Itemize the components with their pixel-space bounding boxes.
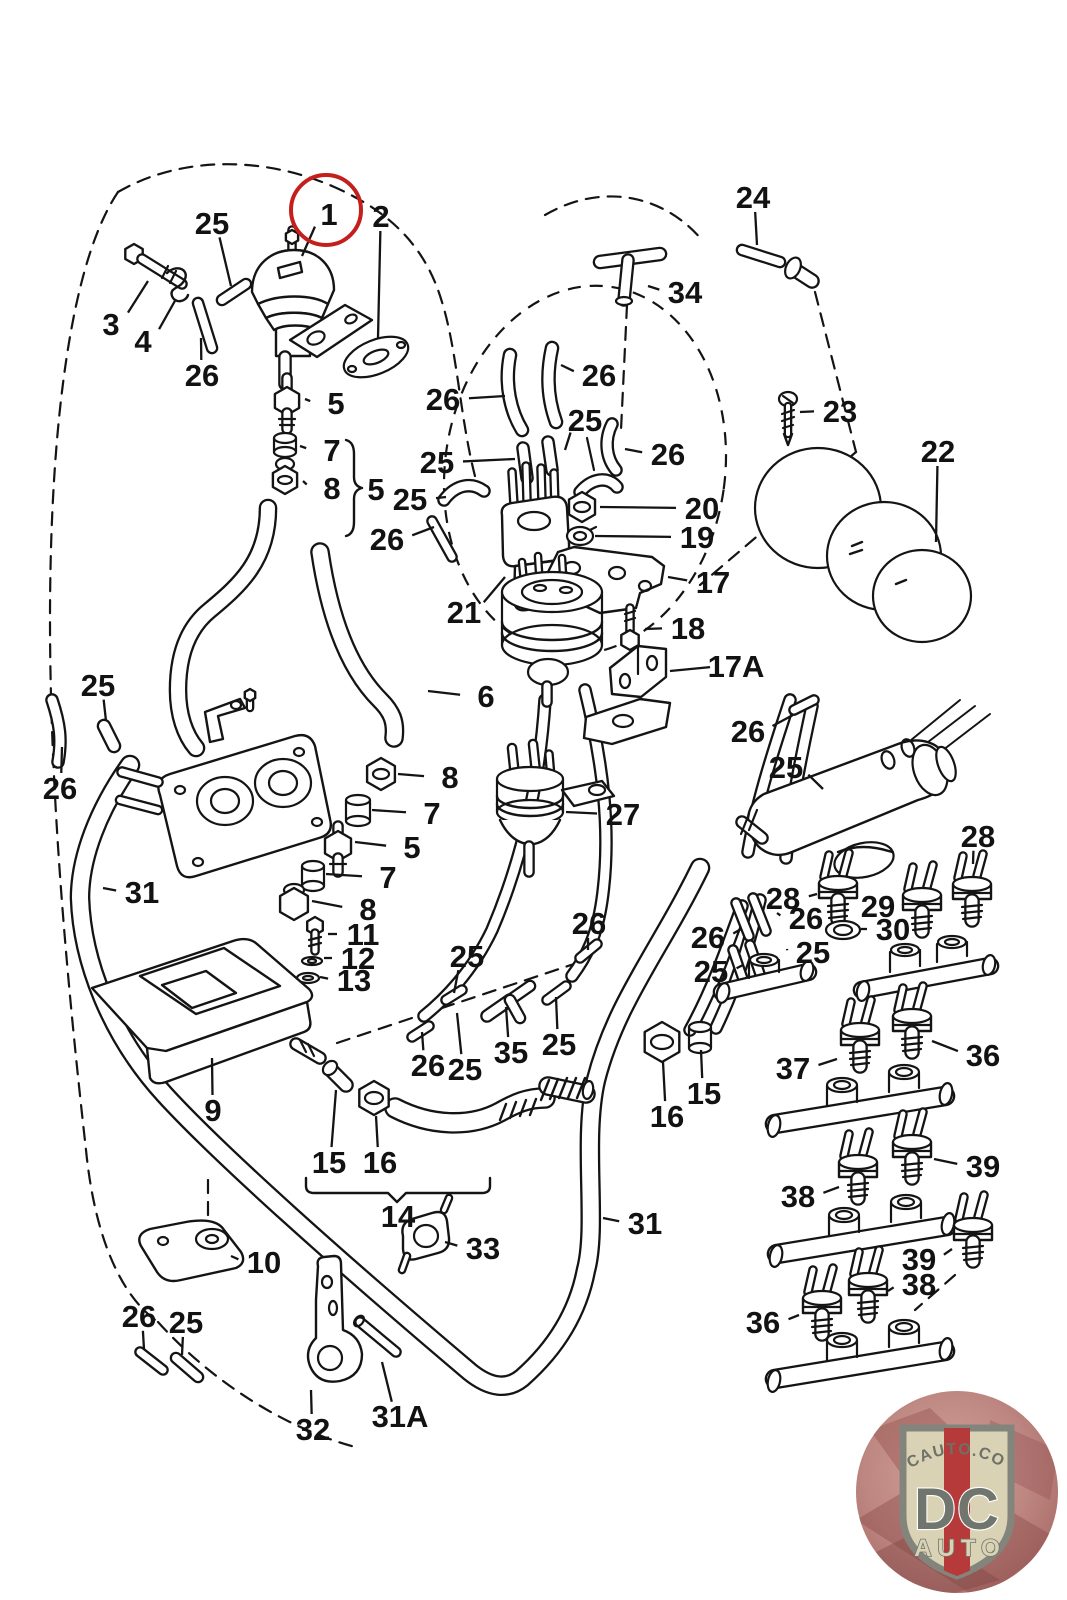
- leader-line: [436, 497, 446, 498]
- part-label-36: 36: [966, 1038, 1000, 1073]
- pressure-unit-22: [755, 448, 971, 642]
- part-label-26: 26: [789, 901, 823, 936]
- part-label-5: 5: [367, 472, 384, 507]
- part-label-5: 5: [403, 830, 420, 865]
- part-label-15: 15: [687, 1076, 721, 1111]
- screw-23: [779, 392, 797, 445]
- leader-line: [902, 904, 904, 905]
- bracket-17A: [584, 646, 670, 744]
- part-label-13: 13: [337, 963, 371, 998]
- part-label-37: 37: [776, 1051, 810, 1086]
- part-label-23: 23: [823, 394, 857, 429]
- part-label-14: 14: [381, 1199, 416, 1234]
- plug-24: [782, 255, 812, 281]
- part-label-39: 39: [966, 1149, 1000, 1184]
- leader-line: [888, 1287, 894, 1291]
- part-label-3: 3: [102, 307, 119, 342]
- part-label-25: 25: [195, 206, 229, 241]
- bolt-18: [621, 608, 638, 650]
- exploded-parts-diagram: 2512342657852434262625252625262322201917…: [0, 0, 1067, 1600]
- parts-diagram-page: 2512342657852434262625252625262322201917…: [0, 0, 1067, 1600]
- leader-line: [398, 774, 424, 776]
- leader-line: [648, 286, 659, 290]
- leader-line: [372, 810, 406, 812]
- leader-line: [625, 449, 642, 452]
- leader-line: [159, 299, 176, 329]
- leader-line: [595, 536, 671, 537]
- leader-line: [220, 237, 231, 286]
- part-label-7: 7: [423, 796, 440, 831]
- fitting-stack-top: [273, 378, 362, 536]
- logo-brand-text: DC: [914, 1477, 1000, 1542]
- leader-line: [663, 1062, 665, 1101]
- leader-line: [382, 1362, 392, 1402]
- part-label-35: 35: [494, 1035, 528, 1070]
- leader-line: [61, 747, 62, 773]
- part-label-25: 25: [448, 1052, 482, 1087]
- leader-line: [312, 901, 342, 907]
- gasket-2: [338, 329, 414, 386]
- part-label-2: 2: [372, 199, 389, 234]
- leader-line: [355, 842, 386, 846]
- part-label-25: 25: [796, 935, 830, 970]
- leader-line: [332, 1090, 336, 1147]
- leader-line: [463, 459, 515, 461]
- part-label-6: 6: [477, 679, 494, 714]
- part-label-25: 25: [542, 1027, 576, 1062]
- leader-line: [668, 577, 687, 580]
- part-label-26: 26: [731, 714, 765, 749]
- leader-line: [303, 481, 307, 484]
- leader-line: [376, 1116, 378, 1147]
- part-label-26: 26: [411, 1048, 445, 1083]
- part-label-31A: 31A: [372, 1399, 429, 1434]
- leader-line: [934, 1159, 957, 1164]
- part-label-4: 4: [134, 324, 152, 359]
- leader-line: [128, 281, 148, 313]
- part-label-26: 26: [572, 906, 606, 941]
- part-label-26: 26: [185, 358, 219, 393]
- leader-line: [936, 466, 937, 542]
- leader-line: [932, 1041, 958, 1051]
- part-label-26: 26: [122, 1299, 156, 1334]
- leader-line: [670, 667, 710, 671]
- canister-9: [92, 939, 312, 1083]
- leader-line: [311, 1390, 312, 1414]
- leader-line: [603, 1218, 619, 1221]
- extra-leader: [587, 438, 594, 470]
- part-label-25: 25: [450, 939, 484, 974]
- leader-line: [469, 396, 505, 398]
- part-label-18: 18: [671, 611, 705, 646]
- part-label-31: 31: [125, 875, 159, 910]
- part-label-26: 26: [651, 437, 685, 472]
- leader-line: [305, 399, 310, 401]
- part-label-28: 28: [961, 819, 995, 854]
- leader-line: [600, 507, 676, 508]
- part-label-38: 38: [902, 1267, 936, 1302]
- leader-line: [800, 411, 814, 412]
- leader-line: [412, 527, 434, 535]
- part-label-21: 21: [447, 595, 481, 630]
- leader-line: [809, 894, 817, 896]
- part-label-9: 9: [204, 1093, 221, 1128]
- bolt-3: [125, 244, 182, 284]
- part-label-25: 25: [81, 668, 115, 703]
- part-label-25: 25: [769, 750, 803, 785]
- bracket-10: [139, 1221, 243, 1281]
- part-label-25: 25: [420, 445, 454, 480]
- part-label-15: 15: [312, 1145, 346, 1180]
- part-label-16: 16: [650, 1099, 684, 1134]
- leader-line: [320, 977, 328, 979]
- part-label-31: 31: [628, 1206, 662, 1241]
- part-label-25: 25: [169, 1305, 203, 1340]
- carb-flange: [120, 689, 331, 877]
- leader-line: [701, 1050, 702, 1078]
- part-label-17: 17: [696, 565, 730, 600]
- part-label-16: 16: [363, 1145, 397, 1180]
- part-label-26: 26: [691, 920, 725, 955]
- leader-line: [944, 1249, 952, 1255]
- leader-line: [428, 691, 460, 695]
- part-label-5: 5: [327, 386, 344, 421]
- part-label-22: 22: [921, 434, 955, 469]
- part-label-36: 36: [746, 1305, 780, 1340]
- leader-line: [212, 1058, 213, 1095]
- part-label-32: 32: [296, 1412, 330, 1447]
- leader-line: [300, 446, 306, 448]
- pump-body: [502, 556, 602, 702]
- part-label-26: 26: [426, 382, 460, 417]
- leader-line: [103, 888, 116, 890]
- part-label-19: 19: [680, 520, 714, 555]
- part-label-1: 1: [320, 197, 337, 232]
- part-label-34: 34: [668, 275, 703, 310]
- leader-line: [755, 212, 757, 245]
- nut-20: [569, 492, 595, 522]
- part-label-30: 30: [876, 912, 910, 947]
- part-label-7: 7: [379, 860, 396, 895]
- leader-line: [457, 1013, 461, 1054]
- part-label-38: 38: [781, 1179, 815, 1214]
- part-label-7: 7: [323, 433, 340, 468]
- leader-line: [566, 812, 597, 813]
- part-label-26: 26: [582, 358, 616, 393]
- diagram-artwork: [50, 164, 997, 1447]
- leader-line: [378, 231, 380, 338]
- leader-line: [818, 1059, 837, 1065]
- part-label-25: 25: [694, 954, 728, 989]
- part-label-8: 8: [323, 471, 340, 506]
- part-label-25: 25: [393, 482, 427, 517]
- tee-34: [600, 254, 660, 305]
- part-label-10: 10: [247, 1245, 281, 1280]
- leader-line: [645, 628, 662, 629]
- washer-19: [567, 527, 596, 545]
- leader-line: [556, 997, 557, 1029]
- part-label-25: 25: [568, 403, 602, 438]
- part-label-24: 24: [736, 180, 771, 215]
- leader-line: [506, 1007, 508, 1037]
- leader-line: [823, 1187, 839, 1193]
- leader-line: [789, 1315, 799, 1319]
- part-label-17A: 17A: [708, 649, 765, 684]
- part-label-8: 8: [441, 760, 458, 795]
- part-label-33: 33: [466, 1231, 500, 1266]
- leader-line: [561, 365, 574, 371]
- part-label-27: 27: [606, 797, 640, 832]
- logo-sub-text: AUTO: [914, 1535, 1006, 1562]
- part-label-26: 26: [370, 522, 404, 557]
- part-label-26: 26: [43, 771, 77, 806]
- leader-line: [326, 874, 362, 876]
